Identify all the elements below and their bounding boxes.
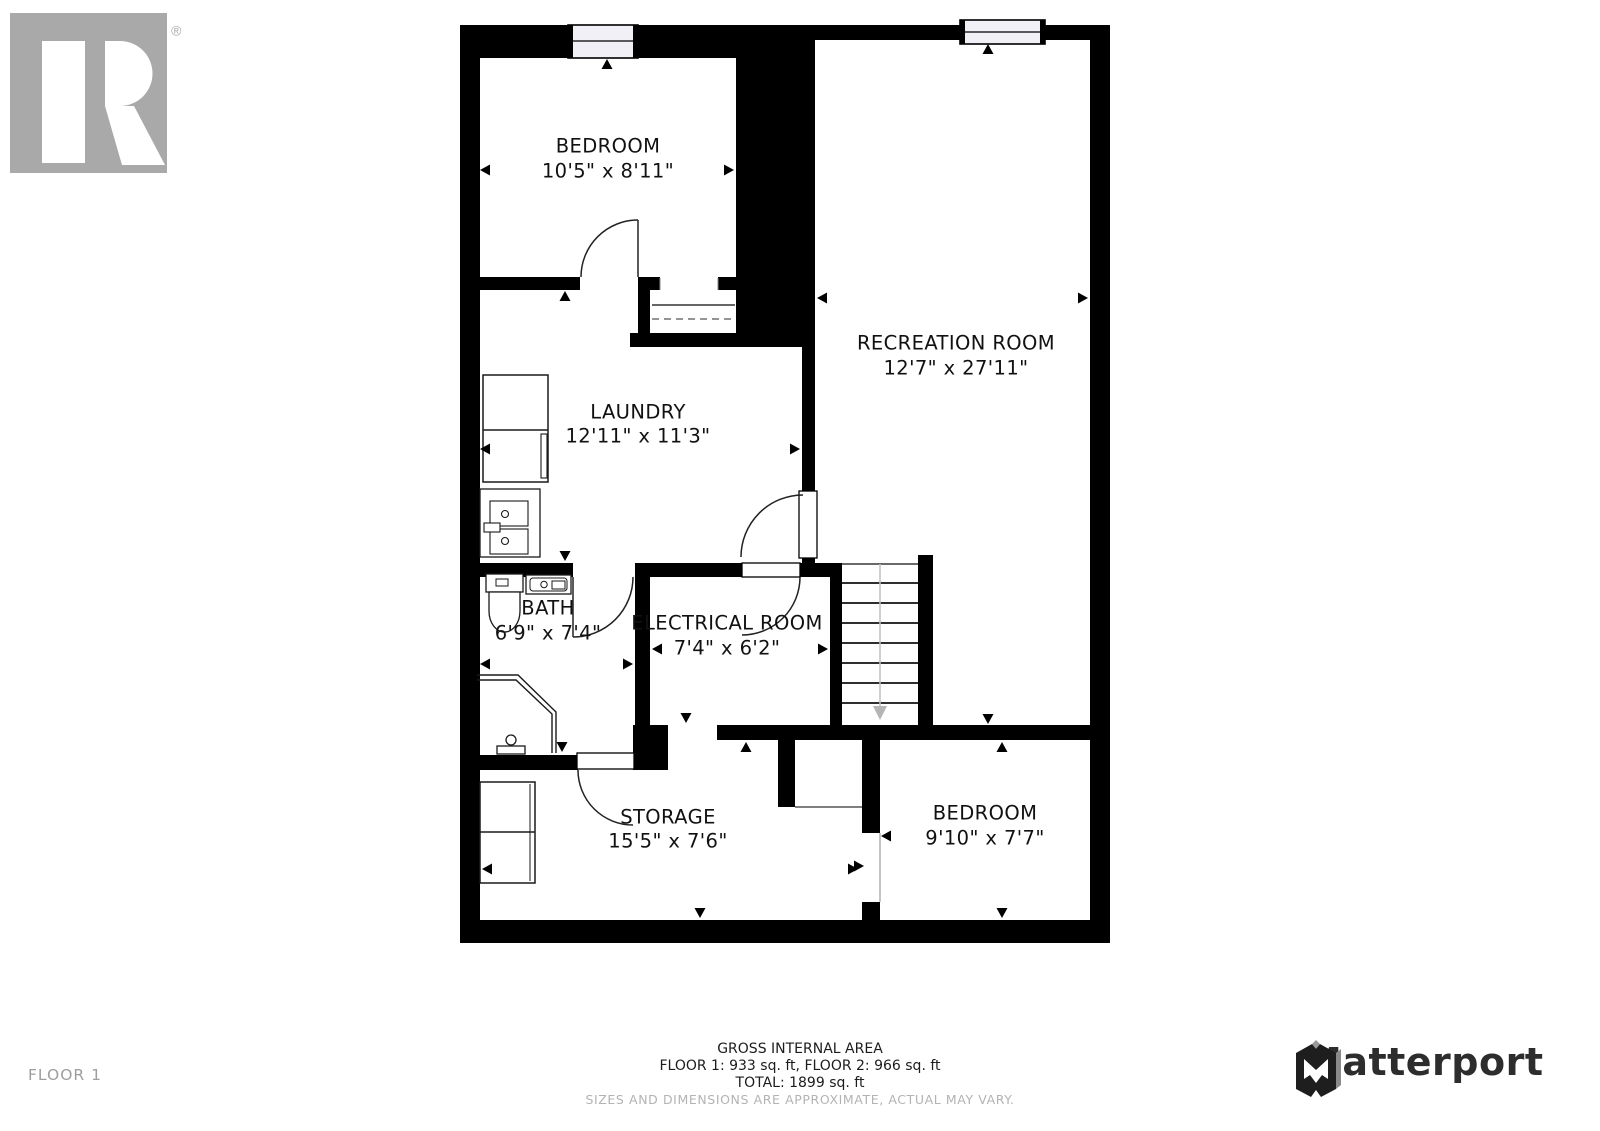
realtor-logo: REALTOR®	[10, 13, 180, 52]
room-dims-bath: 6'9" x 7'4"	[495, 622, 602, 645]
room-dims-recreation: 12'7" x 27'11"	[883, 357, 1028, 380]
window-icon-recreation	[960, 20, 1045, 44]
bath-sink-icon	[526, 575, 571, 594]
room-dims-bedroom1: 10'5" x 8'11"	[542, 160, 674, 183]
staircase	[842, 564, 918, 720]
shower-valve-icon	[497, 735, 525, 754]
disclaimer-text: SIZES AND DIMENSIONS ARE APPROXIMATE, AC…	[585, 1092, 1014, 1107]
door-bedroom1	[581, 220, 638, 277]
room-name-recreation: RECREATION ROOM	[857, 332, 1055, 355]
stairs-down-arrow-icon	[873, 706, 887, 720]
room-dims-laundry: 12'11" x 11'3"	[565, 425, 710, 448]
room-dims-bedroom2: 9'10" x 7'7"	[925, 827, 1044, 850]
matterport-logo-icon	[1292, 1040, 1344, 1102]
floorplan-drawing	[0, 0, 1600, 1131]
floor-number-label: FLOOR 1	[28, 1066, 102, 1084]
corner-shower-icon	[477, 675, 556, 753]
floor-areas-text: FLOOR 1: 933 sq. ft, FLOOR 2: 966 sq. ft	[659, 1058, 940, 1074]
gross-internal-area-title: GROSS INTERNAL AREA	[717, 1041, 883, 1057]
registered-mark: ®	[171, 23, 181, 39]
room-name-storage: STORAGE	[620, 806, 716, 829]
room-name-bedroom1: BEDROOM	[556, 135, 661, 158]
total-area-text: TOTAL: 1899 sq. ft	[736, 1075, 865, 1091]
room-name-bath: BATH	[521, 597, 574, 620]
room-dims-electrical: 7'4" x 6'2"	[674, 637, 781, 660]
room-name-laundry: LAUNDRY	[590, 401, 686, 424]
room-name-bedroom2: BEDROOM	[933, 802, 1038, 825]
floorplan-page: BEDROOM 10'5" x 8'11" RECREATION ROOM 12…	[0, 0, 1600, 1131]
room-dims-storage: 15'5" x 7'6"	[608, 830, 727, 853]
window-icon-bedroom1	[568, 25, 638, 58]
utility-sink-icon	[480, 489, 540, 557]
stair-landing	[652, 305, 735, 319]
washer-dryer-icon	[483, 375, 548, 482]
room-name-electrical: ELECTRICAL ROOM	[631, 612, 822, 635]
matterport-logo: Matterport	[1292, 1040, 1544, 1084]
realtor-logo-icon	[10, 13, 167, 173]
door-recreation	[741, 491, 817, 558]
